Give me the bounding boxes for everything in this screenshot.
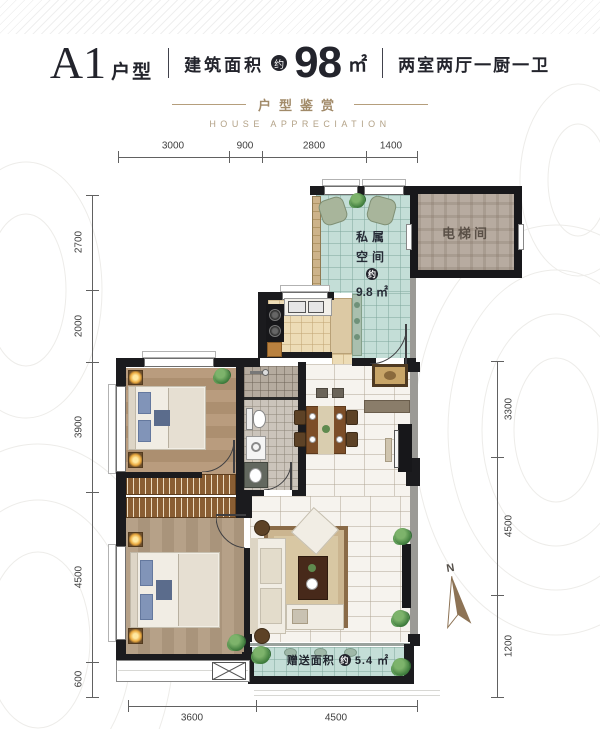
- shelf-pot: [354, 334, 360, 340]
- piano-keys: [394, 430, 399, 468]
- table-tray: [306, 578, 318, 590]
- gift-area-label: 赠送面积 约 5.4 ㎡: [276, 652, 400, 668]
- wall: [236, 474, 244, 518]
- nightstand-lamp: [128, 370, 143, 385]
- piano-bench: [385, 438, 392, 462]
- terrace-edge: [254, 695, 440, 696]
- dim-right-1: 3300: [504, 398, 515, 420]
- dim-tick: [256, 700, 257, 712]
- window: [116, 546, 126, 640]
- rooms-description: 两室两厅一厨一卫: [398, 51, 550, 76]
- dim-tick: [491, 361, 504, 362]
- plate: [336, 436, 343, 443]
- dim-tick: [417, 700, 418, 712]
- wall: [236, 362, 244, 474]
- hall-cabinet: [332, 388, 344, 398]
- dim-top-2: 900: [237, 141, 254, 152]
- plate: [309, 413, 316, 420]
- nightstand-lamp: [128, 452, 143, 468]
- window: [364, 186, 404, 195]
- bedroom2-door-leaf: [216, 514, 246, 516]
- bed-headboard: [130, 552, 138, 628]
- window: [144, 358, 214, 367]
- bed-headboard: [128, 386, 136, 450]
- burner: [269, 325, 281, 337]
- dim-line-top: [118, 157, 418, 158]
- terrace-edge: [254, 690, 440, 691]
- bathroom-door-leaf: [290, 462, 292, 490]
- wall: [292, 490, 298, 496]
- bedroom2-door-arc: [216, 516, 245, 548]
- dim-tick: [118, 151, 119, 163]
- private-space-area: 9.8 ㎡: [356, 283, 388, 300]
- dim-right-2: 4500: [504, 515, 515, 537]
- pillow: [140, 594, 153, 620]
- dim-right-3: 1200: [504, 635, 515, 657]
- dining-chair: [346, 432, 358, 447]
- dim-tick: [262, 151, 263, 163]
- toilet-bowl: [253, 410, 266, 428]
- bathroom-door-arc: [264, 462, 292, 490]
- balcony-slider: [250, 642, 410, 647]
- dim-left-3: 3900: [74, 416, 85, 438]
- plant: [350, 193, 365, 208]
- banner-subtitle-en: HOUSE APPRECIATION: [0, 119, 600, 129]
- gift-label: 赠送面积: [287, 652, 335, 668]
- nightstand-lamp: [128, 628, 143, 644]
- dim-left-1: 2700: [74, 231, 85, 253]
- plate: [336, 413, 343, 420]
- dim-tick: [86, 492, 99, 493]
- window-sill: [362, 179, 406, 186]
- area-group: 建筑面积 约 98 ㎡: [184, 41, 367, 85]
- private-space-label: 私属 空间 约 9.8 ㎡: [330, 228, 414, 300]
- kitchen-counter: [330, 298, 352, 354]
- bed-throw: [156, 580, 172, 600]
- dim-top-3: 2800: [303, 141, 325, 152]
- unit-suffix: 户型: [111, 62, 153, 83]
- plant: [392, 610, 409, 627]
- sideboard: [364, 400, 410, 413]
- shower-head: [262, 369, 269, 376]
- hall-cabinet: [316, 388, 328, 398]
- bed-throw: [154, 410, 170, 426]
- kitchen-cabinet: [267, 342, 282, 357]
- dim-tick: [86, 290, 99, 291]
- bedroom1-door-arc: [202, 440, 234, 472]
- private-space-name-1: 私属: [356, 228, 388, 245]
- flue-shaft: [212, 662, 246, 680]
- unit-name: A1: [50, 37, 106, 88]
- elevator-door: [518, 224, 524, 250]
- bed-blanket: [168, 388, 204, 448]
- dim-top-4: 1400: [380, 141, 402, 152]
- dim-line-left: [92, 195, 93, 697]
- dim-bottom-1: 3600: [181, 713, 203, 724]
- wall: [410, 362, 418, 646]
- dim-tick: [417, 151, 418, 163]
- centerpiece: [322, 425, 330, 433]
- dining-chair: [294, 432, 306, 447]
- plant: [214, 368, 230, 384]
- sink-basin: [249, 468, 262, 483]
- gift-area-value: 5.4 ㎡: [355, 652, 389, 668]
- pillow: [138, 420, 151, 442]
- dim-line-right: [497, 361, 498, 697]
- wall: [298, 362, 306, 496]
- header-divider: [168, 48, 169, 78]
- dining-chair: [294, 410, 306, 425]
- dim-left-4: 4500: [74, 566, 85, 588]
- window-sill: [108, 384, 116, 474]
- toilet-tank: [246, 408, 253, 430]
- wall: [408, 362, 420, 372]
- dim-left-2: 2000: [74, 315, 85, 337]
- dim-tick: [86, 697, 99, 698]
- dim-tick: [86, 662, 99, 663]
- dim-bottom-2: 4500: [325, 713, 347, 724]
- dim-tick: [491, 595, 504, 596]
- unit-title: A1户型: [50, 40, 153, 86]
- private-space-name-2: 空间: [356, 248, 388, 265]
- dim-tick: [491, 457, 504, 458]
- table-plant: [308, 564, 316, 572]
- bench-pillow: [292, 609, 308, 624]
- pillow: [138, 392, 151, 414]
- dim-tick: [491, 697, 504, 698]
- banner-line-left: [172, 104, 246, 105]
- wall: [116, 472, 202, 478]
- washer-door: [251, 442, 261, 452]
- dining-chair: [346, 410, 358, 425]
- entry-door-leaf: [405, 324, 407, 364]
- dim-tick: [128, 700, 129, 712]
- banner-title: 户型鉴赏: [258, 95, 342, 114]
- bedroom1-door-leaf: [233, 440, 235, 473]
- window-sill: [322, 179, 360, 186]
- dim-left-5: 600: [74, 671, 85, 688]
- sink-basin: [288, 301, 306, 313]
- dim-line-bottom: [128, 706, 417, 707]
- area-label: 建筑面积: [184, 51, 264, 76]
- plant: [394, 528, 411, 545]
- sofa-back: [250, 538, 258, 634]
- area-unit: ㎡: [348, 50, 367, 77]
- piano: [398, 424, 412, 472]
- approx-badge: 约: [339, 654, 351, 666]
- tv: [402, 544, 411, 608]
- shower-partition: [244, 397, 298, 400]
- dim-top-1: 3000: [162, 141, 184, 152]
- plate: [309, 436, 316, 443]
- header-divider: [382, 48, 383, 78]
- nightstand-lamp: [128, 532, 143, 547]
- window-sill: [142, 351, 216, 358]
- doormat-medallion: [384, 371, 396, 380]
- side-table: [254, 628, 270, 644]
- elevator-label: 电梯间: [418, 194, 514, 270]
- bed-blanket: [178, 554, 218, 626]
- entry-door-arc: [370, 324, 407, 364]
- side-table: [254, 520, 270, 536]
- appreciation-banner: 户型鉴赏 HOUSE APPRECIATION: [0, 95, 600, 129]
- window: [116, 386, 126, 472]
- window-sill: [108, 544, 116, 642]
- sofa-cushion: [260, 588, 282, 624]
- plan-header: A1户型 建筑面积 约 98 ㎡ 两室两厅一厨一卫: [0, 36, 600, 90]
- sink-basin: [308, 301, 324, 313]
- approx-badge: 约: [366, 268, 378, 280]
- dim-tick: [229, 151, 230, 163]
- sofa-cushion: [260, 548, 282, 584]
- area-value: 98: [294, 41, 341, 85]
- approx-badge: 约: [271, 55, 287, 71]
- shelf-pot: [354, 318, 360, 324]
- window-sill: [280, 285, 330, 292]
- shelf-pot: [354, 302, 360, 308]
- banner-line-right: [354, 104, 428, 105]
- wall: [248, 676, 412, 684]
- dim-tick: [86, 195, 99, 196]
- dim-tick: [86, 362, 99, 363]
- plant: [252, 646, 270, 664]
- plant: [228, 634, 245, 651]
- dim-tick: [366, 151, 367, 163]
- pillow: [140, 560, 153, 586]
- burner: [269, 309, 281, 321]
- elevator-room: 电梯间: [410, 186, 522, 278]
